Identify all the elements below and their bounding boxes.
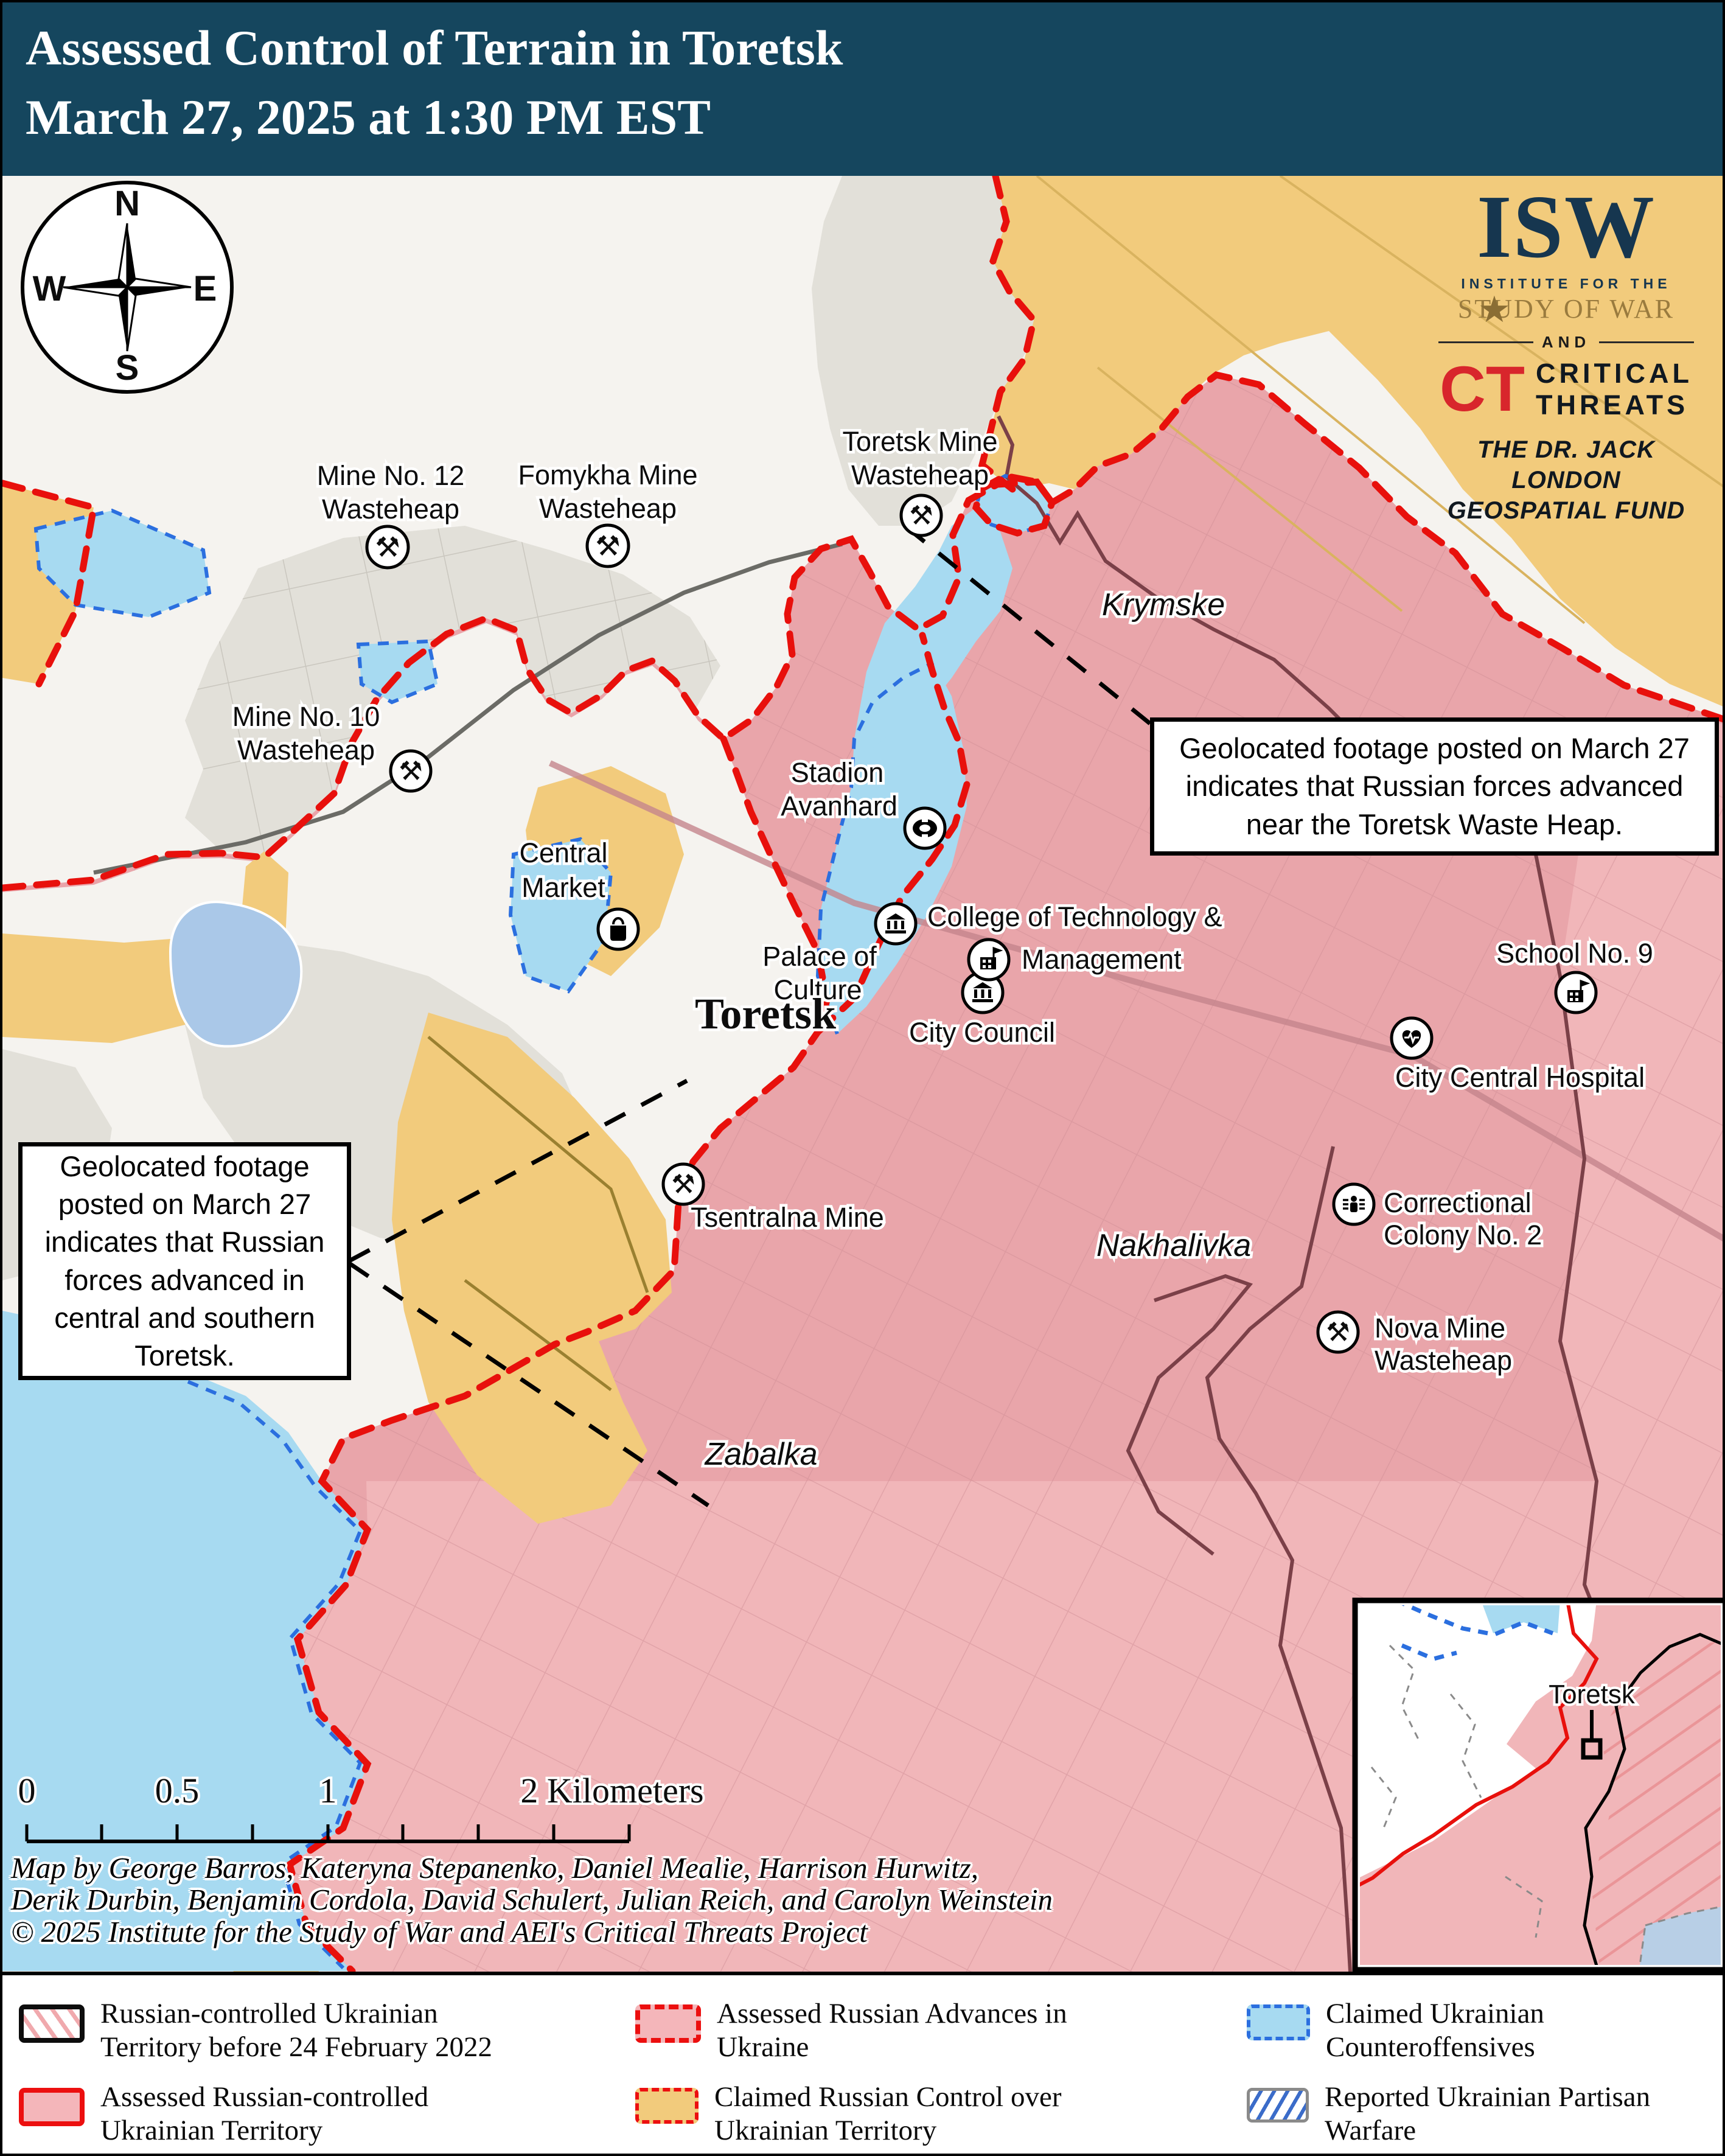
compass-rose: N S E W xyxy=(23,183,232,392)
svg-text:0: 0 xyxy=(18,1771,36,1810)
compass-n: N xyxy=(114,184,140,223)
isw-study-of-war-text: STUDY OF WAR xyxy=(1420,293,1712,324)
legend-item-claimed-russian: Claimed Russian Control overUkrainian Te… xyxy=(635,2088,1061,2147)
svg-text:Wasteheap: Wasteheap xyxy=(322,494,459,525)
title-bar: Assessed Control of Terrain in Toretsk M… xyxy=(2,2,1723,176)
label-nakhalivka: Nakhalivka xyxy=(1096,1228,1251,1263)
compass-w: W xyxy=(33,269,66,309)
label-tsentralna: Tsentralna Mine xyxy=(691,1202,884,1233)
svg-text:Management: Management xyxy=(1022,944,1182,975)
divider-line xyxy=(1438,341,1533,343)
mine-icon-toretsk: ⚒ xyxy=(901,495,941,536)
label-city-council: City Council xyxy=(909,1017,1055,1048)
callout-toretsk-waste-heap: Geolocated footage posted on March 27 in… xyxy=(1150,717,1719,856)
ct-logo: CT xyxy=(1440,361,1525,419)
svg-text:⚒: ⚒ xyxy=(375,531,400,563)
label-palace: Palace of xyxy=(762,941,877,972)
inset-map: Toretsk xyxy=(1355,1600,1725,1970)
prison-icon xyxy=(1334,1184,1374,1224)
label-zabalka: Zabalka xyxy=(704,1437,818,1472)
threats-text: THREATS xyxy=(1536,389,1693,421)
museum-icon-college xyxy=(876,904,916,944)
and-text: AND xyxy=(1542,333,1591,352)
star-icon: ★ xyxy=(1478,288,1511,331)
legend-item-advances: Assessed Russian Advances inUkraine xyxy=(635,2004,1067,2064)
swatch-partisan xyxy=(1247,2088,1309,2123)
market-icon xyxy=(598,909,638,949)
label-toretsk-city: Toretsk xyxy=(695,989,836,1038)
isw-institute-text: INSTITUTE FOR THE xyxy=(1420,276,1712,292)
svg-text:⚒: ⚒ xyxy=(1326,1317,1350,1348)
isw-toretsk-map-page: ⚒ ⚒ ⚒ ⚒ ⚒ ⚒ xyxy=(0,0,1725,2156)
divider-line xyxy=(1599,341,1694,343)
stadium-icon xyxy=(905,808,945,848)
mine-icon-nova: ⚒ xyxy=(1318,1312,1358,1352)
legend: Russian-controlled UkrainianTerritory be… xyxy=(2,1972,1723,2156)
svg-text:⚒: ⚒ xyxy=(671,1169,695,1200)
label-mine10: Mine No. 10 xyxy=(232,701,380,732)
svg-text:Colony No. 2: Colony No. 2 xyxy=(1384,1219,1542,1251)
label-stadion: Stadion xyxy=(791,757,884,788)
swatch-counteroffensives xyxy=(1247,2004,1310,2040)
legend-item-pre2022: Russian-controlled UkrainianTerritory be… xyxy=(19,2004,492,2064)
mine-icon-no10: ⚒ xyxy=(391,751,431,791)
compass-e: E xyxy=(193,269,217,309)
label-toretsk-mine: Toretsk Mine xyxy=(842,426,997,457)
isw-wordmark: ISW xyxy=(1420,182,1712,272)
label-fomykha: Fomykha Mine xyxy=(518,459,697,490)
svg-text:2 Kilometers: 2 Kilometers xyxy=(520,1771,703,1810)
swatch-russian-controlled xyxy=(19,2088,85,2126)
svg-text:⚒: ⚒ xyxy=(595,529,620,562)
label-central-market: Central xyxy=(519,837,607,868)
svg-text:Wasteheap: Wasteheap xyxy=(539,493,677,524)
college-building-icon xyxy=(969,940,1009,980)
inset-toretsk-label: Toretsk xyxy=(1549,1680,1636,1709)
label-hospital: City Central Hospital xyxy=(1395,1062,1645,1093)
mine-icon-fomykha: ⚒ xyxy=(587,525,629,567)
svg-text:Wasteheap: Wasteheap xyxy=(237,734,375,766)
svg-text:Market: Market xyxy=(521,872,605,903)
swatch-pre2022 xyxy=(19,2004,85,2043)
label-school9: School No. 9 xyxy=(1496,938,1653,969)
svg-text:1: 1 xyxy=(319,1771,337,1810)
mine-icon-tsentralna: ⚒ xyxy=(663,1164,703,1204)
svg-text:Wasteheap: Wasteheap xyxy=(851,459,989,490)
mine-icon-no12: ⚒ xyxy=(367,526,408,568)
svg-text:0.5: 0.5 xyxy=(155,1771,200,1810)
swatch-claimed-russian xyxy=(635,2088,699,2124)
svg-text:Wasteheap: Wasteheap xyxy=(1375,1345,1512,1376)
fund-line2: GEOSPATIAL FUND xyxy=(1420,495,1712,526)
isw-ct-logo: ISW ★ INSTITUTE FOR THE STUDY OF WAR AND… xyxy=(1420,182,1712,526)
svg-text:⚒: ⚒ xyxy=(909,500,933,531)
label-mine12: Mine No. 12 xyxy=(317,460,465,491)
label-krymske: Krymske xyxy=(1102,587,1225,623)
svg-text:⚒: ⚒ xyxy=(399,756,422,787)
critical-text: CRITICAL xyxy=(1536,358,1693,389)
page-subtitle: March 27, 2025 at 1:30 PM EST xyxy=(26,89,711,146)
page-title: Assessed Control of Terrain in Toretsk xyxy=(26,19,843,77)
legend-item-partisan: Reported Ukrainian PartisanWarfare xyxy=(1247,2088,1650,2147)
legend-item-russian-controlled: Assessed Russian-controlledUkrainian Ter… xyxy=(19,2088,428,2147)
school-icon xyxy=(1556,972,1596,1013)
compass-s: S xyxy=(116,348,139,388)
label-nova-mine: Nova Mine xyxy=(1375,1313,1505,1344)
swatch-advances xyxy=(635,2004,701,2043)
map-credits: Map by George Barros, Kateryna Stepanenk… xyxy=(11,1852,1053,1948)
label-colony: Correctional xyxy=(1384,1187,1532,1218)
label-college: College of Technology & xyxy=(927,901,1222,932)
legend-item-counteroffensives: Claimed UkrainianCounteroffensives xyxy=(1247,2004,1544,2064)
svg-text:Avanhard: Avanhard xyxy=(781,790,897,822)
fund-line1: THE DR. JACK LONDON xyxy=(1420,434,1712,495)
callout-central-southern-toretsk: Geolocated footage posted on March 27 in… xyxy=(18,1142,351,1380)
hospital-icon xyxy=(1392,1018,1432,1058)
